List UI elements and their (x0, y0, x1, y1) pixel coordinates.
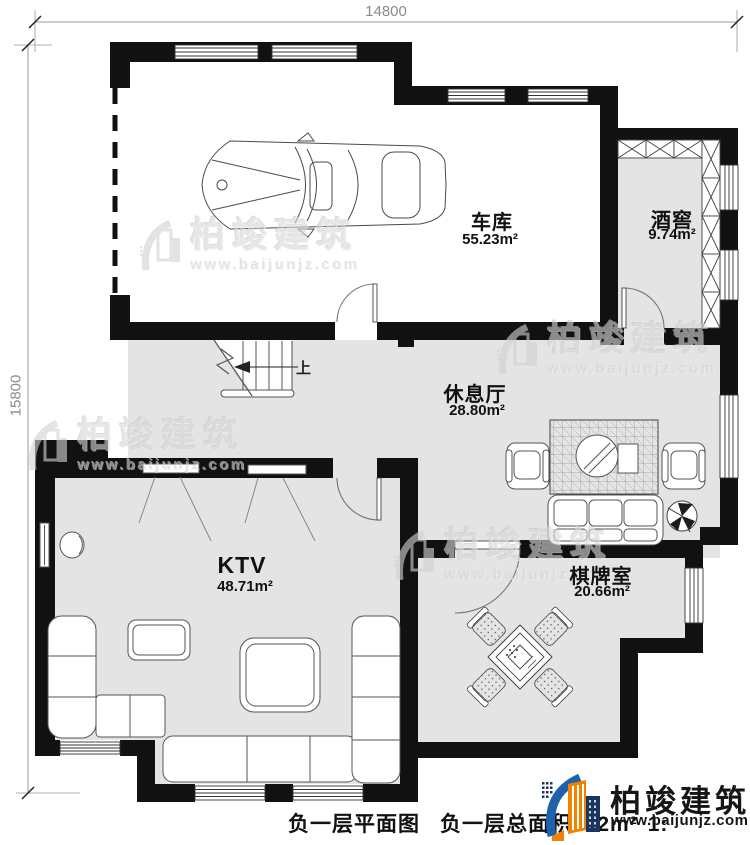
plan-title: 负一层平面图 (288, 813, 420, 836)
car-mirror-bottom (298, 229, 314, 237)
stairs-up-label: 上 (296, 357, 311, 378)
window-bay-1 (195, 786, 265, 800)
armchair-right (662, 443, 705, 489)
room-area-wine-cellar: 9.74m² (648, 226, 696, 243)
sofa-three-seat (548, 495, 663, 545)
floor-plan-page: 柏竣建筑 www.baijunjz.com 柏竣建筑 www.baijunjz.… (0, 0, 750, 845)
speaker-left (60, 532, 84, 558)
car-top-view (202, 133, 446, 237)
floor-plan-drawing (0, 0, 750, 845)
potted-plant (667, 501, 697, 532)
side-tray (618, 444, 638, 473)
window-wine-east-1 (720, 165, 738, 210)
wine-rack-right-column (702, 140, 720, 328)
brand-logo-url: www.baijunjz.com (611, 812, 748, 829)
wall-tv-left (40, 523, 49, 567)
armchair-left (506, 443, 549, 489)
room-area-chess-room: 20.66m² (574, 583, 630, 600)
window-upper-right-2 (528, 89, 588, 102)
window-garage-top-1 (175, 45, 258, 59)
brand-logo: 柏竣建筑 www.baijunjz.com (540, 768, 750, 845)
dimension-left: 15800 (8, 356, 25, 436)
window-chess-east (685, 568, 703, 623)
window-lounge-east (720, 395, 738, 478)
door-garage-lounge (337, 284, 377, 322)
dimension-top: 14800 (365, 3, 407, 20)
car-mirror-top (298, 133, 314, 141)
ktv-table-small (128, 620, 190, 660)
window-garage-top-2 (272, 45, 357, 59)
wine-rack-top-row (618, 140, 702, 158)
window-ktv-southwest (60, 742, 120, 754)
window-bay-2 (293, 786, 363, 800)
window-upper-right-1 (448, 89, 505, 102)
car-body (202, 141, 446, 229)
wine-door-threshold (624, 328, 664, 345)
room-area-ktv: 48.71m² (217, 578, 273, 595)
room-area-lounge: 28.80m² (449, 402, 505, 419)
brand-logo-icon (540, 770, 608, 844)
room-label-ktv: KTV (218, 552, 267, 579)
room-area-garage: 55.23m² (462, 231, 518, 248)
window-wine-east-2 (720, 250, 738, 300)
ktv-door-threshold (333, 458, 377, 478)
ktv-table-large (240, 638, 320, 712)
